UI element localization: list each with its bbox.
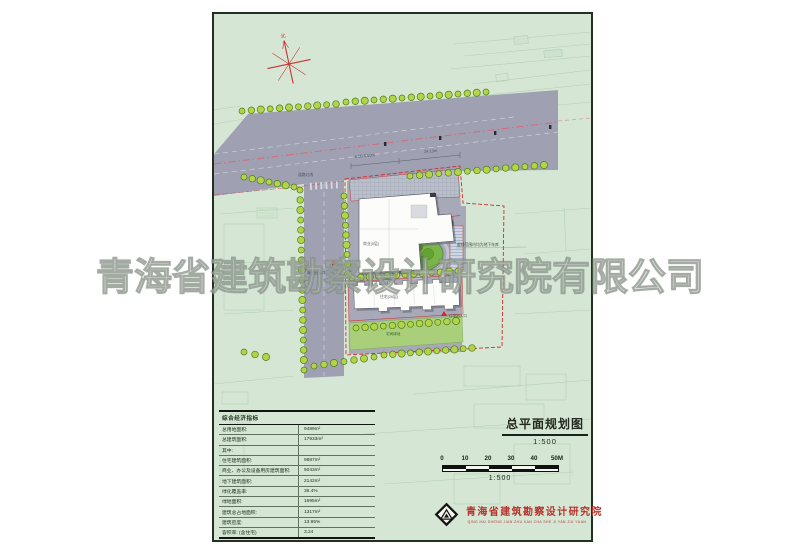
scalebar-tick: 10 bbox=[462, 455, 469, 462]
tree-icon bbox=[426, 171, 433, 178]
tree-icon bbox=[427, 93, 433, 99]
tree-icon bbox=[321, 361, 328, 368]
tree-icon bbox=[274, 180, 281, 187]
table-row: 建筑总占地面积: 1317m² bbox=[219, 507, 375, 517]
publisher-pinyin: QING HAI SHENG JIAN ZHU KAN CHA SHE JI Y… bbox=[466, 520, 588, 524]
tree-icon bbox=[502, 165, 509, 172]
tree-icon bbox=[298, 236, 305, 243]
tree-icon bbox=[299, 296, 306, 303]
tree-icon bbox=[324, 102, 330, 108]
tree-icon bbox=[344, 252, 350, 258]
tree-icon bbox=[341, 359, 347, 365]
tree-icon bbox=[366, 273, 373, 280]
tree-icon bbox=[398, 350, 405, 357]
tree-icon bbox=[305, 103, 312, 110]
table-row: 绿地面积: 1695m² bbox=[219, 497, 375, 507]
tree-icon bbox=[341, 212, 348, 219]
tree-icon bbox=[344, 270, 351, 277]
row-value: 9887m² bbox=[299, 456, 320, 465]
tree-icon bbox=[341, 193, 347, 199]
tree-icon bbox=[301, 367, 307, 373]
tree-icon bbox=[408, 94, 415, 101]
tree-icon bbox=[352, 98, 359, 105]
scalebar-segment-row bbox=[443, 469, 558, 472]
tree-icon bbox=[398, 321, 405, 328]
tree-icon bbox=[343, 99, 349, 105]
tree-icon bbox=[299, 277, 305, 283]
table-row: 容积率: (含住宅) 3.24 bbox=[219, 528, 375, 537]
tree-icon bbox=[407, 350, 413, 356]
tree-icon bbox=[241, 349, 247, 355]
tree-icon bbox=[493, 166, 499, 172]
tree-icon bbox=[262, 353, 269, 360]
tree-icon bbox=[314, 102, 321, 109]
row-label: 商业、办公及设备用房建筑面积: bbox=[219, 466, 299, 475]
drawing-title: 总平面规划图 bbox=[502, 415, 588, 436]
tree-icon bbox=[381, 352, 387, 358]
row-label: 其中: bbox=[219, 446, 299, 455]
tree-icon bbox=[299, 287, 306, 294]
tree-icon bbox=[380, 96, 387, 103]
row-label: 总建筑面积: bbox=[219, 435, 299, 444]
tree-icon bbox=[330, 359, 337, 366]
scalebar-ratio: 1:500 bbox=[442, 475, 558, 482]
row-value: 17933m² bbox=[299, 435, 323, 444]
row-label: 建筑密度: bbox=[219, 518, 299, 527]
tree-icon bbox=[416, 320, 423, 327]
title-block: 总平面规划图 1:500 bbox=[502, 415, 588, 446]
green-strip-label: 宅间绿地 bbox=[386, 331, 401, 336]
tree-icon bbox=[389, 95, 396, 102]
tree-icon bbox=[469, 345, 476, 352]
table-row: 其中: bbox=[219, 446, 375, 456]
row-value: 2142m² bbox=[299, 476, 320, 485]
tree-icon bbox=[460, 346, 466, 352]
tree-icon bbox=[300, 317, 307, 324]
tree-icon bbox=[429, 270, 435, 276]
table-row: 建筑密度: 13.95% bbox=[219, 518, 375, 528]
row-value: 9489m² bbox=[299, 425, 320, 434]
table-row: 总用地面积: 9489m² bbox=[219, 425, 375, 435]
row-value: 1317m² bbox=[299, 507, 320, 516]
tree-icon bbox=[239, 108, 245, 114]
table-row: 地下建筑面积: 2142m² bbox=[219, 476, 375, 486]
table-row: 绿化覆盖率: 36.4% bbox=[219, 487, 375, 497]
tree-icon bbox=[248, 107, 255, 114]
tree-icon bbox=[343, 232, 350, 239]
tree-icon bbox=[436, 92, 443, 99]
tree-icon bbox=[417, 93, 424, 100]
publisher-name: 青海省建筑勘察设计研究院 bbox=[466, 503, 588, 518]
tree-icon bbox=[376, 273, 382, 279]
tree-icon bbox=[442, 347, 449, 354]
note-underline bbox=[456, 247, 526, 248]
tree-icon bbox=[300, 356, 307, 363]
tree-icon bbox=[407, 173, 413, 179]
row-label: 总用地面积: bbox=[219, 425, 299, 434]
tree-icon bbox=[360, 355, 367, 362]
tree-icon bbox=[300, 326, 307, 333]
table-row: 商业、办公及设备用房建筑面积: 5043m² bbox=[219, 466, 375, 476]
tree-icon bbox=[474, 167, 481, 174]
tree-icon bbox=[252, 351, 259, 358]
residential-entrance-label: 住宅出入口 bbox=[449, 313, 467, 318]
tree-icon bbox=[408, 321, 414, 327]
tree-icon bbox=[298, 266, 305, 273]
north-arrow-icon bbox=[262, 36, 314, 88]
tree-icon bbox=[297, 187, 303, 193]
scalebar-bar bbox=[442, 465, 559, 472]
row-label: 绿化覆盖率: bbox=[219, 487, 299, 496]
tree-icon bbox=[298, 227, 305, 234]
tree-icon bbox=[380, 323, 386, 329]
tree-icon bbox=[266, 179, 272, 185]
tree-icon bbox=[298, 247, 304, 253]
scalebar-tick: 0 bbox=[440, 455, 443, 462]
row-value: 1695m² bbox=[299, 497, 320, 506]
tree-icon bbox=[241, 174, 247, 180]
tree-icon bbox=[437, 269, 444, 276]
tree-icon bbox=[311, 363, 317, 369]
tree-icon bbox=[464, 168, 470, 174]
tree-icon bbox=[371, 97, 377, 103]
scalebar-tick: 20 bbox=[485, 455, 492, 462]
tree-icon bbox=[257, 177, 264, 184]
tree-icon bbox=[425, 319, 432, 326]
table-title: 综合经济指标 bbox=[219, 412, 375, 425]
tree-icon bbox=[371, 354, 377, 360]
tree-icon bbox=[445, 170, 452, 177]
tree-icon bbox=[343, 241, 350, 248]
tree-icon bbox=[435, 319, 441, 325]
tree-icon bbox=[358, 274, 365, 281]
tree-icon bbox=[344, 261, 351, 268]
tree-icon bbox=[540, 161, 547, 168]
tree-icon bbox=[464, 90, 471, 97]
north-label: 北 bbox=[280, 32, 286, 40]
tree-icon bbox=[298, 217, 304, 223]
tree-icon bbox=[285, 104, 292, 111]
tree-icon bbox=[452, 317, 459, 324]
tree-icon bbox=[297, 206, 304, 213]
drawing-sheet: 5.05 6.60m 34.13m 道路红线 商业(5层) 住宅(26层) 商业… bbox=[212, 12, 593, 542]
row-value: 3.24 bbox=[299, 528, 313, 537]
tree-icon bbox=[416, 349, 423, 356]
tree-icon bbox=[300, 337, 306, 343]
economic-indicators-table: 综合经济指标 总用地面积: 9489m² 总建筑面积: 17933m² 其中: … bbox=[219, 410, 375, 539]
tree-icon bbox=[483, 166, 490, 173]
tree-icon bbox=[389, 322, 396, 329]
tree-icon bbox=[454, 169, 461, 176]
tree-icon bbox=[455, 268, 461, 274]
tree-icon bbox=[436, 171, 442, 177]
tree-icon bbox=[276, 105, 283, 112]
tree-icon bbox=[416, 172, 423, 179]
scalebar-ticks: 0 10 20 30 40 50M bbox=[442, 455, 558, 463]
garage-entrance-label: 地下车库出入口 bbox=[392, 270, 418, 275]
tree-icon bbox=[531, 163, 538, 170]
tree-icon bbox=[434, 348, 440, 354]
residential-building-label: 住宅(26层) bbox=[380, 294, 399, 299]
commercial-entrance-label: 商业出入口 bbox=[307, 270, 325, 275]
tree-icon bbox=[451, 346, 458, 353]
tree-icon bbox=[512, 164, 519, 171]
tree-icon bbox=[333, 101, 340, 108]
tree-icon bbox=[300, 347, 307, 354]
tree-icon bbox=[341, 203, 348, 210]
row-label: 地下建筑面积: bbox=[219, 476, 299, 485]
scalebar-tick: 50M bbox=[551, 455, 563, 462]
tree-icon bbox=[297, 197, 304, 204]
tree-icon bbox=[444, 318, 451, 325]
row-value: 13.95% bbox=[299, 518, 320, 527]
scalebar-tick: 30 bbox=[508, 455, 515, 462]
tree-icon bbox=[473, 89, 480, 96]
tree-icon bbox=[384, 272, 391, 279]
tree-icon bbox=[446, 268, 453, 275]
row-label: 建筑总占地面积: bbox=[219, 507, 299, 516]
tree-icon bbox=[351, 357, 358, 364]
tree-icon bbox=[282, 182, 289, 189]
tree-icon bbox=[399, 95, 405, 101]
tree-icon bbox=[361, 97, 368, 104]
drawing-scale: 1:500 bbox=[502, 437, 588, 446]
tree-icon bbox=[267, 106, 273, 112]
publisher-text: 青海省建筑勘察设计研究院 QING HAI SHENG JIAN ZHU KAN… bbox=[466, 503, 588, 524]
row-value bbox=[299, 446, 304, 455]
tree-icon bbox=[295, 104, 301, 110]
north-compass: 北 bbox=[261, 28, 315, 88]
garage-note-label: 虚线范围内均为地下车库 bbox=[457, 242, 499, 247]
scalebar-tick: 40 bbox=[531, 455, 538, 462]
page: 5.05 6.60m 34.13m 道路红线 商业(5层) 住宅(26层) 商业… bbox=[0, 0, 800, 544]
table-row: 总建筑面积: 17933m² bbox=[219, 435, 375, 445]
row-value: 5043m² bbox=[299, 466, 320, 475]
publisher-strip: 青海省建筑勘察设计研究院 QING HAI SHENG JIAN ZHU KAN… bbox=[430, 500, 588, 530]
tree-icon bbox=[424, 348, 431, 355]
tree-icon bbox=[353, 325, 359, 331]
tree-icon bbox=[343, 222, 349, 228]
row-label: 住宅建筑面积: bbox=[219, 456, 299, 465]
road-redline-label: 道路红线 bbox=[298, 172, 313, 177]
commercial-building-label: 商业(5层) bbox=[363, 241, 380, 246]
tree-icon bbox=[445, 91, 452, 98]
tree-icon bbox=[371, 323, 378, 330]
tree-icon bbox=[522, 164, 528, 170]
tree-icon bbox=[249, 175, 256, 182]
row-value: 36.4% bbox=[299, 487, 318, 496]
tree-icon bbox=[390, 351, 397, 358]
table-row: 住宅建筑面积: 9887m² bbox=[219, 456, 375, 466]
row-label: 绿地面积: bbox=[219, 497, 299, 506]
scale-bar: 0 10 20 30 40 50M 1:500 bbox=[442, 455, 558, 487]
tree-icon bbox=[257, 106, 264, 113]
tree-icon bbox=[300, 307, 306, 313]
row-label: 容积率: (含住宅) bbox=[219, 528, 299, 537]
tree-icon bbox=[483, 89, 489, 95]
tree-icon bbox=[298, 257, 305, 264]
tree-icon bbox=[291, 184, 297, 190]
publisher-logo-icon bbox=[433, 501, 460, 528]
tree-icon bbox=[362, 324, 369, 331]
tree-icon bbox=[455, 91, 461, 97]
